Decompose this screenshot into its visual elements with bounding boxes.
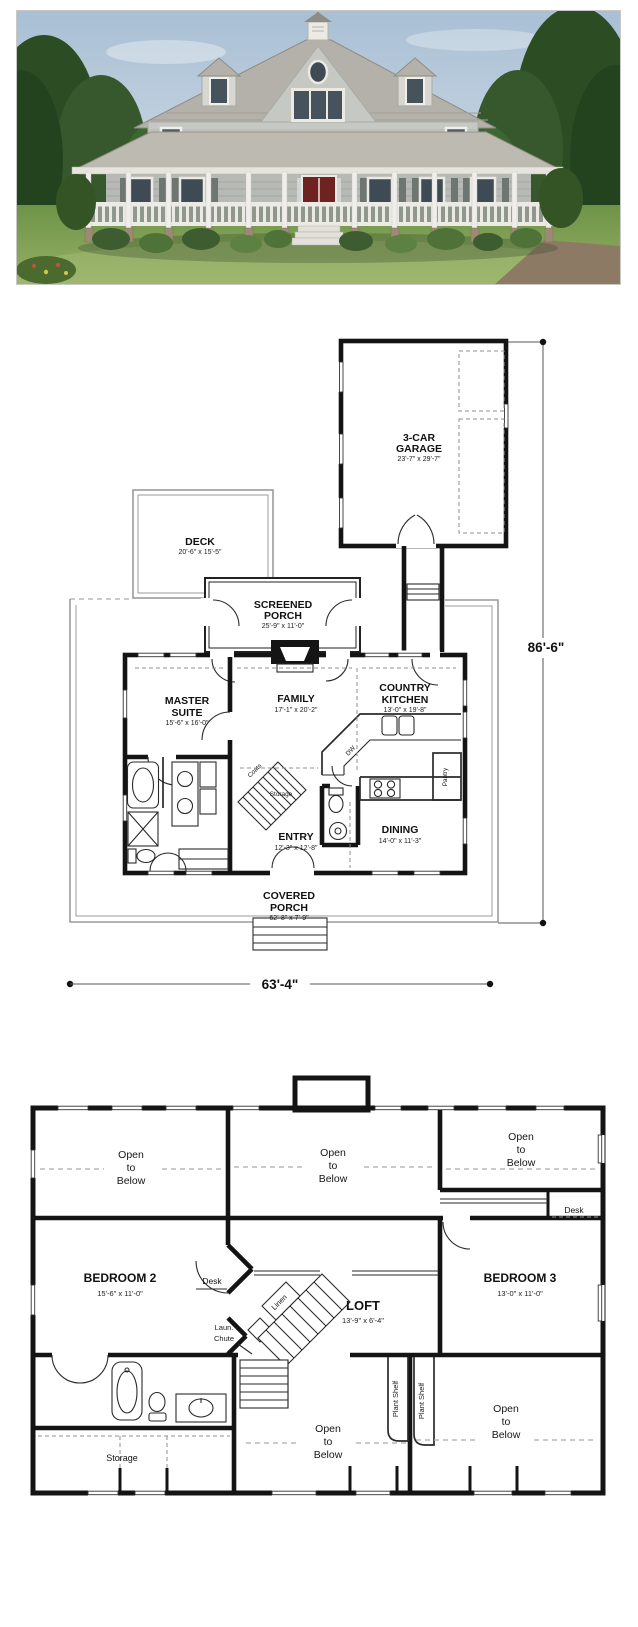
svg-text:Below: Below	[507, 1157, 536, 1169]
open-to-below-topleft: Open to Below	[117, 1149, 146, 1187]
svg-text:to: to	[517, 1144, 526, 1156]
bedroom3-dims: 13'-0" x 11'-0"	[497, 1289, 543, 1298]
desk-nook-right: Desk	[440, 1199, 598, 1217]
flower-bed	[16, 256, 76, 284]
sink-vanity-icon	[176, 1394, 226, 1422]
covered-porch-label-2: PORCH	[270, 902, 308, 914]
second-floor-plan: Desk Desk Laun. Chute Linen	[29, 1078, 605, 1498]
svg-text:to: to	[324, 1436, 333, 1448]
loft-dims: 13'-9" x 6'-4"	[342, 1316, 384, 1325]
screened-porch-label-2: PORCH	[264, 610, 302, 622]
garage: 3-CAR GARAGE 23'-7" x 29'-7"	[336, 341, 510, 548]
entry-label: ENTRY	[278, 831, 313, 843]
overall-depth-dimension: 86'-6"	[528, 640, 565, 655]
front-steps	[292, 226, 346, 245]
porch-steps	[253, 918, 327, 950]
svg-text:Plant Shelf: Plant Shelf	[391, 1380, 400, 1417]
master-closet	[179, 849, 228, 869]
kitchen-label-1: COUNTRY	[379, 682, 431, 694]
svg-text:to: to	[329, 1160, 338, 1172]
svg-text:Open: Open	[508, 1131, 534, 1143]
svg-text:Below: Below	[117, 1175, 146, 1187]
pedestal-sink-icon	[330, 823, 347, 840]
entry-dims: 12'-3" x 12'-8"	[274, 845, 318, 852]
toilet-icon	[329, 788, 343, 795]
coats-label: Coats	[247, 763, 264, 780]
covered-porch-dims: 62'-8" x 7'-9"	[269, 915, 309, 922]
screened-porch-dims: 25'-9" x 11'-0"	[262, 623, 305, 630]
porch-railing	[82, 206, 554, 222]
master-bath	[128, 757, 229, 871]
oval-gable-window	[309, 61, 327, 83]
kitchen-sink-icon	[382, 716, 397, 735]
main-stairs: Coats Storage	[238, 762, 306, 830]
svg-text:Open: Open	[315, 1423, 341, 1435]
svg-text:Plant Shelf: Plant Shelf	[417, 1382, 426, 1419]
family-dims: 17'-1" x 20'-2"	[274, 707, 318, 714]
bathtub-icon	[112, 1362, 142, 1420]
storage-room: Storage	[38, 1436, 230, 1491]
kitchen-counters: DW Pantry	[322, 714, 461, 800]
dining-label: DINING	[382, 824, 419, 836]
deck-dims: 20'-6" x 15'-5"	[178, 549, 222, 556]
first-floor-plan: 86'-6" 63'-4" DECK 20'-6" x 15'-5"	[67, 339, 565, 992]
dimension-lines: 86'-6" 63'-4"	[67, 339, 565, 992]
master-suite-dims: 15'-6" x 16'-0"	[165, 720, 209, 727]
storage-label: Storage	[270, 791, 293, 798]
svg-text:Chute: Chute	[214, 1334, 234, 1343]
vanity-icon	[172, 762, 198, 826]
svg-text:to: to	[502, 1416, 511, 1428]
open-to-below-topcenter: Open to Below	[319, 1147, 348, 1185]
svg-text:Below: Below	[319, 1173, 348, 1185]
svg-text:to: to	[127, 1162, 136, 1174]
svg-text:Laun.: Laun.	[215, 1323, 234, 1332]
storage-label-2f: Storage	[106, 1453, 138, 1463]
desk-label-left: Desk	[202, 1276, 222, 1286]
family-label: FAMILY	[277, 693, 315, 705]
bedroom2-label: BEDROOM 2	[84, 1271, 157, 1285]
house-plan-page: 86'-6" 63'-4" DECK 20'-6" x 15'-5"	[0, 0, 638, 1627]
garage-dims: 23'-7" x 29'-7"	[397, 456, 441, 463]
shower-icon	[128, 812, 158, 846]
overall-width-dimension: 63'-4"	[262, 977, 299, 992]
house-plan-graphic: 86'-6" 63'-4" DECK 20'-6" x 15'-5"	[0, 0, 638, 1627]
svg-text:Below: Below	[314, 1449, 343, 1461]
breezeway	[404, 546, 442, 652]
bedroom2-dims: 15'-6" x 11'-0"	[97, 1289, 143, 1298]
loft-label: LOFT	[346, 1298, 380, 1313]
open-to-below-bottommiddle: Open to Below	[314, 1423, 343, 1461]
master-suite-label-1: MASTER	[165, 695, 210, 707]
garage-label-2: GARAGE	[396, 443, 442, 455]
range-icon	[370, 779, 400, 798]
svg-text:Open: Open	[493, 1403, 519, 1415]
svg-text:Open: Open	[320, 1147, 346, 1159]
svg-text:Below: Below	[492, 1429, 521, 1441]
chimney	[295, 1078, 368, 1110]
open-to-below-bottomright: Open to Below	[492, 1403, 521, 1441]
loft-railing	[254, 1271, 438, 1275]
hall-bathroom	[112, 1362, 226, 1422]
bedroom3-label: BEDROOM 3	[484, 1271, 557, 1285]
kitchen-label-2: KITCHEN	[382, 694, 429, 706]
stairs-2f	[240, 1274, 350, 1408]
dishwasher-label: DW	[345, 744, 358, 757]
fireplace-icon	[271, 640, 319, 672]
porch-roof	[74, 132, 561, 170]
desk-label-right: Desk	[564, 1205, 584, 1215]
cloud	[406, 29, 546, 51]
master-suite-label-2: SUITE	[172, 707, 203, 719]
bathtub-icon	[128, 762, 159, 808]
svg-text:Open: Open	[118, 1149, 144, 1161]
dining-dims: 14'-0" x 11'-3"	[379, 838, 422, 845]
linen-cabinet	[200, 762, 216, 787]
toilet-icon	[149, 1393, 166, 1422]
linen-cabinet	[200, 789, 216, 814]
deck-label: DECK	[185, 536, 215, 548]
cloud	[106, 40, 226, 64]
covered-porch-label-1: COVERED	[263, 890, 315, 902]
interior-walls	[127, 657, 358, 871]
svg-text:Pantry: Pantry	[442, 767, 449, 786]
house-photo	[0, 6, 638, 324]
powder-room	[329, 788, 347, 840]
kitchen-dims: 13'-0" x 19'-8"	[383, 707, 427, 714]
open-to-below-topright: Open to Below	[507, 1131, 536, 1169]
toilet-icon	[128, 849, 155, 863]
